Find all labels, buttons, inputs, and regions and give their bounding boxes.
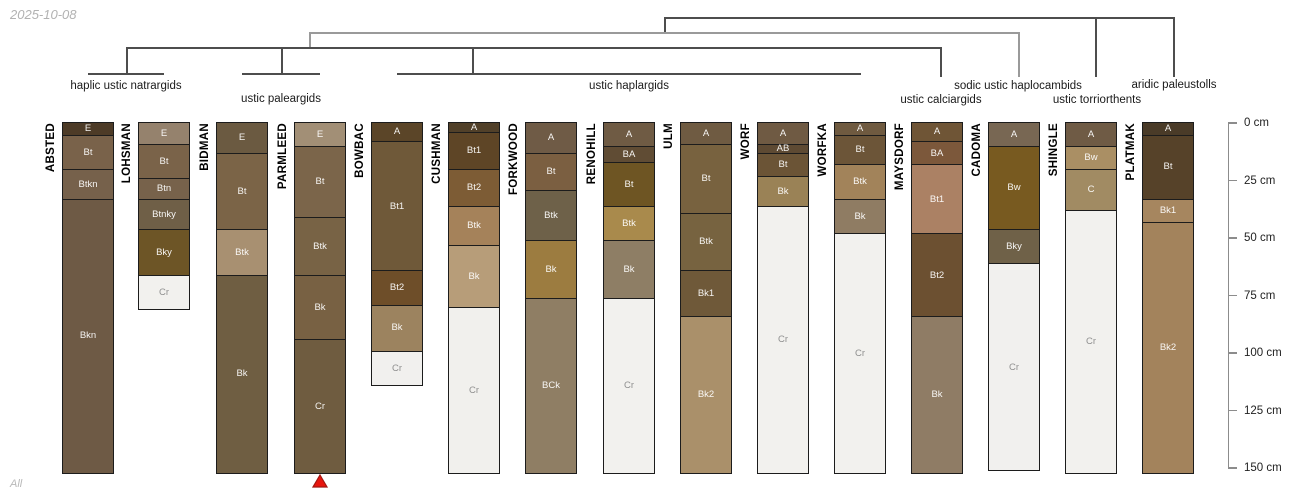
tree-drop-line xyxy=(1173,17,1174,77)
profile-column: ABABtBtkBkCr xyxy=(603,122,655,474)
horizon-bidman-bt: Bt xyxy=(217,153,267,229)
horizon-parmleed-bt: Bt xyxy=(295,146,345,217)
horizon-absted-bkn: Bkn xyxy=(63,199,113,473)
profile-column: ABt1Bt2BtkBkCr xyxy=(448,122,500,474)
horizon-cadoma-cr: Cr xyxy=(989,263,1039,470)
horizon-worfka-a: A xyxy=(835,123,885,135)
horizon-bowbac-bt2: Bt2 xyxy=(372,270,422,305)
horizon-renohill-bt: Bt xyxy=(604,162,654,206)
series-name-label: BIDMAN xyxy=(199,123,211,171)
tree-level-line xyxy=(665,17,1174,18)
horizon-worfka-cr: Cr xyxy=(835,233,885,472)
series-name-label: SHINGLE xyxy=(1048,123,1060,176)
horizon-bidman-btk: Btk xyxy=(217,229,267,275)
tree-drop-line xyxy=(1018,32,1019,77)
depth-axis-tick-label: 0 cm xyxy=(1244,117,1269,129)
horizon-renohill-btk: Btk xyxy=(604,206,654,241)
horizon-cushman-bk: Bk xyxy=(449,245,499,307)
horizon-forkwood-a: A xyxy=(526,123,576,153)
horizon-worf-bt: Bt xyxy=(758,153,808,176)
footer-label: All xyxy=(10,478,22,490)
horizon-worfka-bt: Bt xyxy=(835,135,885,165)
tree-level-line xyxy=(127,47,941,48)
profile-column: EBtBtnBtnkyBkyCr xyxy=(138,122,190,310)
profile-column: ABwCCr xyxy=(1065,122,1117,474)
horizon-absted-btkn: Btkn xyxy=(63,169,113,199)
horizon-forkwood-bck: BCk xyxy=(526,298,576,473)
taxon-label: ustic torriorthents xyxy=(1053,94,1141,106)
horizon-cushman-bt1: Bt1 xyxy=(449,132,499,169)
taxon-label: sodic ustic haplocambids xyxy=(954,80,1082,92)
depth-axis-tick-label: 150 cm xyxy=(1244,462,1282,474)
horizon-parmleed-bk: Bk xyxy=(295,275,345,339)
horizon-shingle-c: C xyxy=(1066,169,1116,210)
horizon-parmleed-btk: Btk xyxy=(295,217,345,275)
depth-axis-tick xyxy=(1228,410,1237,411)
horizon-shingle-bw: Bw xyxy=(1066,146,1116,169)
series-name-label: MAYSDORF xyxy=(894,123,906,190)
profile-column: ABt1Bt2BkCr xyxy=(371,122,423,386)
horizon-bowbac-bk: Bk xyxy=(372,305,422,351)
horizon-renohill-cr: Cr xyxy=(604,298,654,473)
series-name-label: RENOHILL xyxy=(586,123,598,184)
depth-axis-tick xyxy=(1228,122,1237,123)
horizon-absted-bt: Bt xyxy=(63,135,113,170)
flag-triangle-marker xyxy=(312,474,328,488)
horizon-worf-ab: AB xyxy=(758,144,808,153)
profile-column: EBtBtkBk xyxy=(216,122,268,474)
horizon-bidman-bk: Bk xyxy=(217,275,267,473)
series-name-label: WORFKA xyxy=(817,123,829,177)
horizon-ulm-bt: Bt xyxy=(681,144,731,213)
horizon-ulm-bk2: Bk2 xyxy=(681,316,731,472)
tree-drop-line xyxy=(126,47,127,74)
horizon-worf-cr: Cr xyxy=(758,206,808,473)
taxon-label: ustic haplargids xyxy=(589,80,669,92)
series-name-label: PLATMAK xyxy=(1125,123,1137,180)
series-name-label: CUSHMAN xyxy=(431,123,443,184)
horizon-renohill-ba: BA xyxy=(604,146,654,162)
tree-cluster-bracket xyxy=(397,73,861,74)
depth-axis-tick-label: 100 cm xyxy=(1244,347,1282,359)
horizon-cushman-btk: Btk xyxy=(449,206,499,245)
horizon-lohsman-btn: Btn xyxy=(139,178,189,199)
horizon-absted-e: E xyxy=(63,123,113,135)
taxon-label: ustic calciargids xyxy=(900,94,981,106)
profile-column: ABtBtkBkCr xyxy=(834,122,886,474)
tree-drop-line xyxy=(664,17,665,33)
profile-column: ABwBkyCr xyxy=(988,122,1040,471)
taxon-label: aridic paleustolls xyxy=(1131,79,1216,91)
horizon-forkwood-bk: Bk xyxy=(526,240,576,298)
tree-cluster-bracket xyxy=(242,73,320,74)
horizon-maysdorf-a: A xyxy=(912,123,962,141)
series-name-label: ULM xyxy=(663,123,675,149)
horizon-worf-a: A xyxy=(758,123,808,144)
horizon-lohsman-e: E xyxy=(139,123,189,144)
horizon-platmak-bk2: Bk2 xyxy=(1143,222,1193,473)
series-name-label: WORF xyxy=(740,123,752,159)
horizon-bidman-e: E xyxy=(217,123,267,153)
soil-profile-dendrogram-figure: 2025-10-08 haplic ustic natrargidsustic … xyxy=(0,0,1300,500)
horizon-lohsman-bt: Bt xyxy=(139,144,189,179)
depth-axis-tick-label: 75 cm xyxy=(1244,290,1275,302)
horizon-cushman-bt2: Bt2 xyxy=(449,169,499,206)
tree-cluster-bracket xyxy=(88,73,164,74)
tree-drop-line xyxy=(940,47,941,77)
horizon-shingle-a: A xyxy=(1066,123,1116,146)
horizon-ulm-a: A xyxy=(681,123,731,144)
horizon-cadoma-bw: Bw xyxy=(989,146,1039,229)
horizon-forkwood-bt: Bt xyxy=(526,153,576,190)
horizon-cadoma-bky: Bky xyxy=(989,229,1039,264)
profile-column: ABtBtkBk1Bk2 xyxy=(680,122,732,474)
depth-axis-tick-label: 125 cm xyxy=(1244,405,1282,417)
tree-drop-line xyxy=(281,47,282,74)
depth-axis-tick-label: 50 cm xyxy=(1244,232,1275,244)
series-name-label: PARMLEED xyxy=(277,123,289,189)
horizon-maysdorf-bk: Bk xyxy=(912,316,962,472)
depth-axis-tick xyxy=(1228,237,1237,238)
profile-column: ABABt1Bt2Bk xyxy=(911,122,963,474)
tree-drop-line xyxy=(472,47,473,74)
depth-axis-tick-label: 25 cm xyxy=(1244,175,1275,187)
horizon-shingle-cr: Cr xyxy=(1066,210,1116,472)
horizon-cadoma-a: A xyxy=(989,123,1039,146)
horizon-lohsman-cr: Cr xyxy=(139,275,189,310)
horizon-maysdorf-bt1: Bt1 xyxy=(912,164,962,233)
profile-column: EBtBtkBkCr xyxy=(294,122,346,474)
horizon-maysdorf-bt2: Bt2 xyxy=(912,233,962,316)
taxon-label: haplic ustic natrargids xyxy=(70,80,181,92)
series-name-label: LOHSMAN xyxy=(121,123,133,183)
horizon-worf-bk: Bk xyxy=(758,176,808,206)
horizon-cushman-cr: Cr xyxy=(449,307,499,473)
series-name-label: ABSTED xyxy=(45,123,57,172)
horizon-platmak-bt: Bt xyxy=(1143,135,1193,199)
profile-column: AABBtBkCr xyxy=(757,122,809,474)
depth-axis-tick xyxy=(1228,352,1237,353)
depth-axis-tick xyxy=(1228,467,1237,468)
triangle-up-icon xyxy=(312,474,328,488)
series-name-label: CADOMA xyxy=(971,123,983,177)
horizon-renohill-a: A xyxy=(604,123,654,146)
horizon-ulm-btk: Btk xyxy=(681,213,731,271)
horizon-ulm-bk1: Bk1 xyxy=(681,270,731,316)
series-name-label: FORKWOOD xyxy=(508,123,520,195)
horizon-maysdorf-ba: BA xyxy=(912,141,962,164)
horizon-cushman-a: A xyxy=(449,123,499,132)
horizon-platmak-bk1: Bk1 xyxy=(1143,199,1193,222)
horizon-lohsman-btnky: Btnky xyxy=(139,199,189,229)
horizon-platmak-a: A xyxy=(1143,123,1193,135)
horizon-forkwood-btk: Btk xyxy=(526,190,576,241)
horizon-bowbac-a: A xyxy=(372,123,422,141)
horizon-worfka-bk: Bk xyxy=(835,199,885,234)
horizon-parmleed-e: E xyxy=(295,123,345,146)
series-name-label: BOWBAC xyxy=(354,123,366,178)
horizon-worfka-btk: Btk xyxy=(835,164,885,199)
depth-axis-tick xyxy=(1228,295,1237,296)
profile-column: ABtBk1Bk2 xyxy=(1142,122,1194,474)
tree-drop-line xyxy=(309,32,310,48)
horizon-parmleed-cr: Cr xyxy=(295,339,345,472)
tree-level-line xyxy=(310,32,1019,33)
date-label: 2025-10-08 xyxy=(10,7,77,22)
horizon-lohsman-bky: Bky xyxy=(139,229,189,275)
horizon-bowbac-bt1: Bt1 xyxy=(372,141,422,270)
profile-column: EBtBtknBkn xyxy=(62,122,114,474)
tree-drop-line xyxy=(1095,17,1096,77)
profile-column: ABtBtkBkBCk xyxy=(525,122,577,474)
horizon-renohill-bk: Bk xyxy=(604,240,654,298)
depth-axis-tick xyxy=(1228,180,1237,181)
taxon-label: ustic paleargids xyxy=(241,93,321,105)
horizon-bowbac-cr: Cr xyxy=(372,351,422,386)
